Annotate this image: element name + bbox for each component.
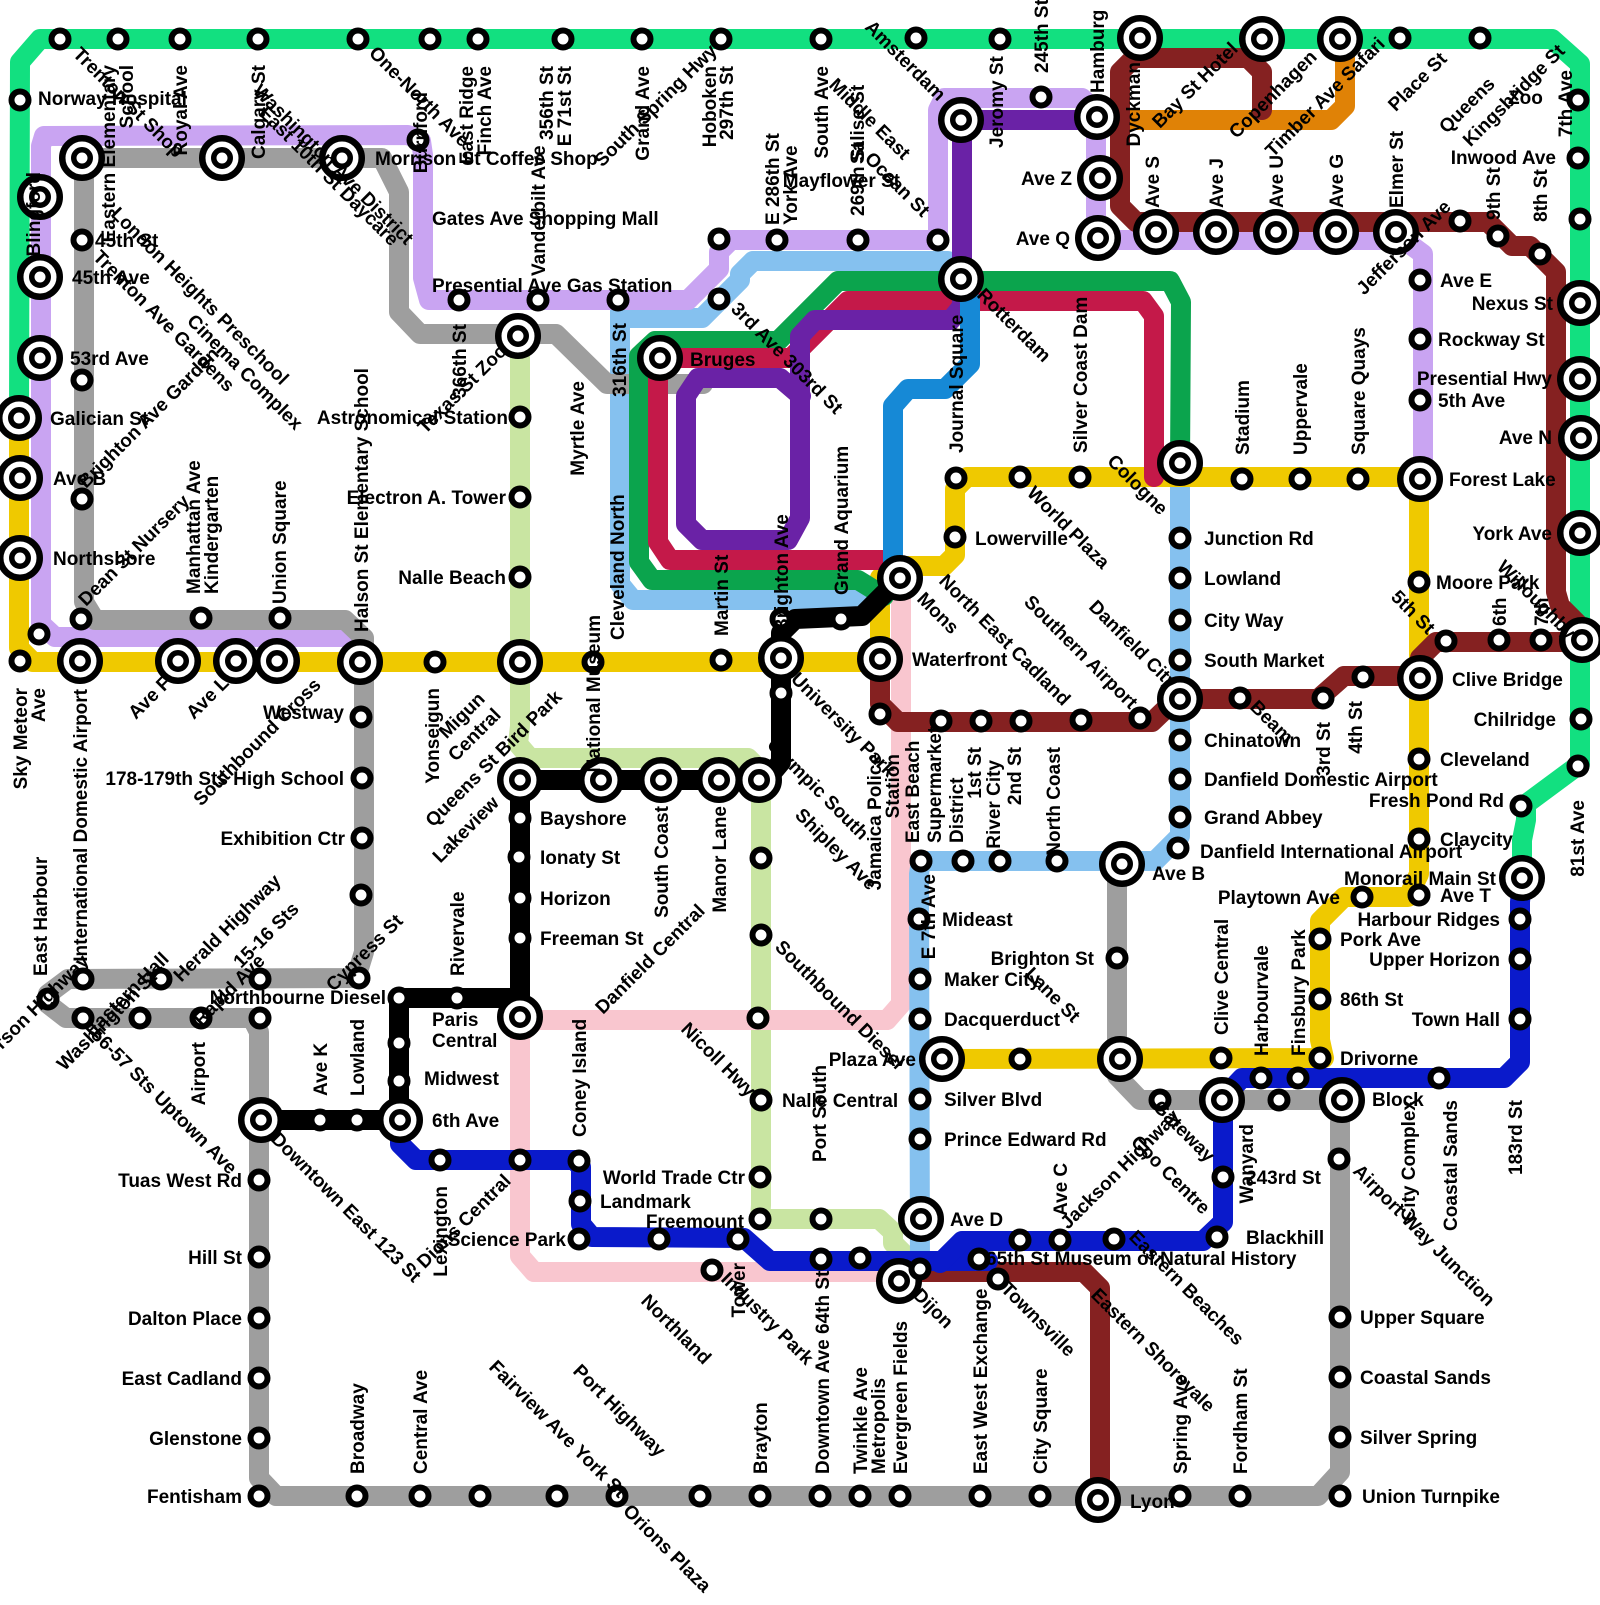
svg-text:Drivorne: Drivorne: [1340, 1049, 1418, 1070]
svg-text:Ave S: Ave S: [1143, 156, 1164, 208]
svg-text:City Way: City Way: [1204, 611, 1284, 632]
svg-text:East Harbour: East Harbour: [31, 856, 52, 976]
svg-text:3rd St: 3rd St: [1314, 721, 1335, 776]
svg-text:Mayflower St: Mayflower St: [783, 171, 901, 192]
svg-text:Grand Abbey: Grand Abbey: [1204, 808, 1323, 829]
svg-text:53rd Ave: 53rd Ave: [70, 349, 149, 370]
svg-text:Nexus St: Nexus St: [1472, 294, 1554, 315]
svg-text:Downtown Ave 64th St: Downtown Ave 64th St: [813, 1270, 834, 1474]
svg-text:Ave J: Ave J: [1207, 158, 1228, 208]
svg-text:Silver Coast Dam: Silver Coast Dam: [1071, 297, 1092, 453]
svg-text:Bruges: Bruges: [690, 350, 755, 371]
svg-text:South Coast: South Coast: [652, 805, 673, 918]
svg-text:6th Ave: 6th Ave: [432, 1111, 499, 1132]
svg-text:Clive Central: Clive Central: [1212, 919, 1233, 1035]
svg-text:Lowland: Lowland: [1204, 569, 1281, 590]
svg-text:Stadium: Stadium: [1233, 380, 1254, 455]
svg-text:7th Ave: 7th Ave: [1556, 70, 1577, 137]
svg-text:Grand Aquarium: Grand Aquarium: [832, 446, 853, 595]
svg-text:Lowerville: Lowerville: [975, 529, 1068, 550]
svg-text:East West Exchange: East West Exchange: [971, 1288, 992, 1474]
svg-text:Upper Square: Upper Square: [1360, 1308, 1485, 1329]
svg-text:Finsbury Park: Finsbury Park: [1289, 929, 1310, 1056]
svg-text:65th St Museum of Natural Hist: 65th St Museum of Natural History: [986, 1249, 1297, 1270]
svg-text:E 71st St: E 71st St: [555, 65, 576, 146]
svg-text:Ave: Ave: [29, 688, 50, 722]
svg-text:Gates Ave Shopping Mall: Gates Ave Shopping Mall: [432, 209, 659, 230]
svg-text:Spring Ave: Spring Ave: [1171, 1375, 1192, 1474]
svg-text:National Museum: National Museum: [584, 615, 605, 772]
svg-text:Ave B: Ave B: [53, 469, 106, 490]
svg-text:Brighton St: Brighton St: [991, 949, 1095, 970]
svg-text:Plaza Ave: Plaza Ave: [829, 1050, 916, 1071]
svg-text:Playtown Ave: Playtown Ave: [1218, 888, 1340, 909]
svg-text:Ave E: Ave E: [1440, 271, 1492, 292]
svg-text:Union Square: Union Square: [270, 480, 291, 604]
svg-text:Galician St: Galician St: [50, 409, 149, 430]
svg-text:Ave B: Ave B: [1152, 864, 1205, 885]
svg-text:Coastal Sands: Coastal Sands: [1360, 1368, 1491, 1389]
svg-text:Lowland: Lowland: [348, 1019, 369, 1096]
svg-text:Finch Ave: Finch Ave: [475, 66, 496, 155]
svg-text:Dyckman: Dyckman: [1124, 62, 1145, 147]
svg-text:Inwood Ave: Inwood Ave: [1451, 148, 1556, 169]
svg-text:Square Quays: Square Quays: [1349, 327, 1370, 455]
svg-text:Upper Horizon: Upper Horizon: [1369, 950, 1500, 971]
svg-text:Martin St: Martin St: [712, 554, 733, 636]
svg-text:Rockway St: Rockway St: [1438, 330, 1545, 351]
svg-text:4th St: 4th St: [1346, 700, 1367, 753]
svg-text:Prince Edward Rd: Prince Edward Rd: [944, 1130, 1107, 1151]
svg-text:Ave U: Ave U: [1267, 155, 1288, 208]
svg-text:9th St: 9th St: [1484, 167, 1505, 220]
svg-text:Moore Park: Moore Park: [1436, 573, 1540, 594]
svg-text:Ave Z: Ave Z: [1021, 169, 1072, 190]
svg-text:Harbourvale: Harbourvale: [1252, 945, 1273, 1056]
svg-text:Union Turnpike: Union Turnpike: [1362, 1487, 1500, 1508]
svg-text:Ave Q: Ave Q: [1016, 229, 1070, 250]
svg-text:Silver Spring: Silver Spring: [1360, 1428, 1477, 1449]
svg-text:Paris: Paris: [432, 1010, 478, 1031]
svg-text:Cleveland: Cleveland: [1440, 750, 1530, 771]
svg-text:Royal Ave: Royal Ave: [171, 65, 192, 155]
svg-text:Lyon: Lyon: [1130, 1492, 1175, 1513]
svg-text:Broadway: Broadway: [348, 1383, 369, 1474]
svg-text:Exhibition Ctr: Exhibition Ctr: [220, 829, 345, 850]
svg-text:Clive Bridge: Clive Bridge: [1452, 670, 1563, 691]
svg-text:Freemount: Freemount: [646, 1212, 745, 1233]
svg-text:Evergreen Fields: Evergreen Fields: [891, 1321, 912, 1474]
svg-text:Cleveland North: Cleveland North: [608, 494, 629, 640]
svg-text:Brayton: Brayton: [751, 1402, 772, 1474]
svg-text:86th St: 86th St: [1340, 990, 1404, 1011]
svg-text:Nalle Beach: Nalle Beach: [398, 568, 506, 589]
svg-text:Wanyard: Wanyard: [1237, 1124, 1258, 1204]
svg-text:Ave T: Ave T: [1440, 886, 1491, 907]
svg-text:Hill St: Hill St: [188, 1248, 243, 1269]
svg-text:2nd St: 2nd St: [1005, 746, 1026, 805]
svg-text:Ave G: Ave G: [1327, 154, 1348, 208]
svg-text:International Domestic Airport: International Domestic Airport: [71, 688, 92, 961]
svg-text:Chilridge: Chilridge: [1474, 710, 1556, 731]
svg-text:Ionaty St: Ionaty St: [540, 848, 621, 869]
svg-text:Block: Block: [1372, 1090, 1424, 1111]
svg-text:Supermarket: Supermarket: [925, 726, 946, 843]
svg-text:Rivervale: Rivervale: [448, 891, 469, 976]
svg-text:Myrtle Ave: Myrtle Ave: [568, 381, 589, 476]
svg-text:Astronomical Station: Astronomical Station: [317, 408, 508, 429]
svg-text:Presential Hwy: Presential Hwy: [1417, 369, 1553, 390]
svg-text:Elmer St: Elmer St: [1387, 130, 1408, 208]
svg-text:Landmark: Landmark: [600, 1192, 691, 1213]
svg-text:1st St: 1st St: [965, 746, 986, 798]
svg-text:Morrison St Coffee Shop: Morrison St Coffee Shop: [375, 149, 598, 170]
svg-text:Hamburg: Hamburg: [1088, 10, 1109, 93]
svg-text:Ave K: Ave K: [311, 1043, 332, 1096]
svg-text:Harbour Ridges: Harbour Ridges: [1357, 910, 1500, 931]
svg-text:Fresh Pond Rd: Fresh Pond Rd: [1369, 791, 1504, 812]
svg-text:Airport: Airport: [189, 1041, 210, 1105]
svg-text:Fordham St: Fordham St: [1231, 1368, 1252, 1474]
svg-text:Glenstone: Glenstone: [149, 1429, 242, 1450]
svg-text:Coastal Sands: Coastal Sands: [1441, 1100, 1462, 1231]
svg-text:Pork Ave: Pork Ave: [1340, 930, 1421, 951]
svg-text:6th: 6th: [1490, 598, 1511, 627]
svg-text:Junction Rd: Junction Rd: [1204, 529, 1314, 550]
svg-text:Dalton Place: Dalton Place: [128, 1309, 242, 1330]
svg-text:River City: River City: [984, 760, 1005, 849]
svg-text:5th Ave: 5th Ave: [1438, 391, 1505, 412]
svg-text:183rd St: 183rd St: [1506, 1099, 1527, 1175]
svg-text:Waterfront: Waterfront: [912, 650, 1008, 671]
svg-text:Forest Lake: Forest Lake: [1449, 470, 1556, 491]
svg-text:Journal Square: Journal Square: [947, 315, 968, 453]
svg-text:South Ave: South Ave: [812, 66, 833, 159]
svg-text:Norway Hospital: Norway Hospital: [38, 89, 187, 110]
svg-text:Danfield International Airport: Danfield International Airport: [1200, 842, 1463, 863]
svg-text:East Cadland: East Cadland: [122, 1369, 242, 1390]
svg-text:City Square: City Square: [1031, 1368, 1052, 1474]
svg-text:Brighton Ave: Brighton Ave: [772, 514, 793, 632]
svg-text:Central: Central: [432, 1031, 497, 1052]
svg-text:8th St: 8th St: [1531, 169, 1552, 222]
svg-text:York Ave: York Ave: [1472, 524, 1552, 545]
svg-text:Science Park: Science Park: [448, 1230, 567, 1251]
svg-text:Freeman St: Freeman St: [540, 929, 644, 950]
svg-text:297th St: 297th St: [717, 65, 738, 140]
svg-text:Nalle Central: Nalle Central: [782, 1091, 898, 1112]
svg-text:South Market: South Market: [1204, 651, 1325, 672]
svg-text:Ave D: Ave D: [950, 1210, 1003, 1231]
svg-text:Northshore: Northshore: [53, 549, 155, 570]
svg-text:Fentisham: Fentisham: [147, 1487, 242, 1508]
svg-text:Zoo: Zoo: [1508, 88, 1543, 109]
svg-text:Port South: Port South: [810, 1065, 831, 1162]
svg-text:7th: 7th: [1532, 598, 1553, 627]
svg-text:Mideast: Mideast: [942, 910, 1013, 931]
svg-text:Coney Island: Coney Island: [570, 1019, 591, 1137]
svg-text:316th St: 316th St: [610, 322, 631, 397]
svg-text:World Trade Ctr: World Trade Ctr: [603, 1168, 746, 1189]
svg-text:East Beach: East Beach: [903, 741, 924, 843]
svg-text:Uppervale: Uppervale: [1291, 363, 1312, 455]
svg-text:Midwest: Midwest: [424, 1069, 500, 1090]
svg-text:Town Hall: Town Hall: [1412, 1010, 1500, 1031]
svg-text:Central Ave: Central Ave: [411, 1370, 432, 1474]
svg-text:Ave N: Ave N: [1499, 428, 1552, 449]
svg-text:Yonseigun: Yonseigun: [423, 688, 444, 784]
svg-text:E 7th Ave: E 7th Ave: [919, 874, 940, 959]
svg-text:Jeromy St: Jeromy St: [987, 55, 1008, 148]
svg-text:81st Ave: 81st Ave: [1568, 800, 1589, 877]
svg-text:Bayshore: Bayshore: [540, 809, 627, 830]
svg-text:Silver Blvd: Silver Blvd: [944, 1090, 1042, 1111]
svg-text:Manor Lane: Manor Lane: [710, 806, 731, 913]
svg-text:Presential Ave Gas Station: Presential Ave Gas Station: [432, 276, 672, 297]
svg-text:Kindergarten: Kindergarten: [202, 476, 223, 594]
svg-text:Horizon: Horizon: [540, 889, 611, 910]
svg-text:Ave C: Ave C: [1051, 1163, 1072, 1216]
svg-text:North Coast: North Coast: [1044, 746, 1065, 855]
svg-text:Blackhill: Blackhill: [1246, 1228, 1324, 1249]
svg-text:Blingford: Blingford: [24, 172, 45, 256]
svg-text:245th St: 245th St: [1032, 0, 1053, 73]
svg-text:Metropolis: Metropolis: [869, 1378, 890, 1474]
svg-text:Northbourne Diesel: Northbourne Diesel: [210, 988, 386, 1009]
svg-text:Halson St Elementary School: Halson St Elementary School: [352, 368, 373, 632]
svg-text:Dacquerduct: Dacquerduct: [944, 1010, 1061, 1031]
